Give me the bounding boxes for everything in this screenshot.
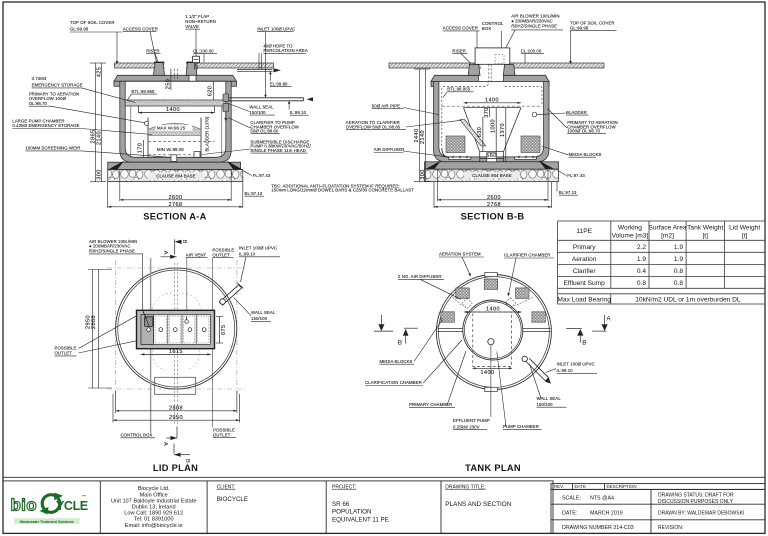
svg-text:ACCESS COVER: ACCESS COVER [123, 26, 158, 31]
svg-text:Dublin 13, Ireland: Dublin 13, Ireland [132, 505, 176, 511]
svg-text:DATE: DATE [575, 484, 586, 489]
svg-text:IL:99.10: IL:99.10 [239, 252, 256, 257]
svg-text:2.2: 2.2 [637, 244, 646, 251]
svg-text:OUTLET: OUTLET [55, 351, 73, 356]
svg-text:0.8: 0.8 [674, 280, 683, 287]
svg-text:[t]: [t] [702, 232, 708, 239]
svg-text:WALL SEAL: WALL SEAL [251, 310, 276, 315]
svg-text:50Ø AIR PIPE: 50Ø AIR PIPE [372, 103, 400, 108]
svg-text:RISER: RISER [452, 48, 466, 53]
svg-text:OL:98.70: OL:98.70 [29, 101, 48, 106]
svg-text:1.9: 1.9 [637, 256, 646, 263]
svg-text:DESCRIPTION: DESCRIPTION [607, 484, 637, 489]
svg-text:DRAWN BY: WALDEMAR DEBOWSKI: DRAWN BY: WALDEMAR DEBOWSKI [658, 510, 744, 516]
svg-text:BTL:98.955: BTL:98.955 [447, 87, 471, 92]
svg-text:BLADDER (1370): BLADDER (1370) [204, 116, 209, 152]
svg-text:1.9: 1.9 [674, 244, 683, 251]
svg-text:560: 560 [486, 153, 497, 159]
svg-text:IL:99.10: IL:99.10 [557, 368, 574, 373]
svg-text:SCALE:: SCALE: [562, 495, 581, 501]
svg-text:300: 300 [420, 169, 426, 180]
svg-text:CL:100.00: CL:100.00 [193, 48, 214, 53]
svg-text:B: B [582, 340, 586, 347]
svg-text:NTS @A4: NTS @A4 [590, 495, 614, 501]
svg-text:PERCOLATION AREA: PERCOLATION AREA [263, 48, 307, 53]
svg-text:0.4: 0.4 [637, 268, 646, 275]
svg-text:Lid Weight: Lid Weight [729, 225, 760, 232]
svg-text:INLET 100Ø UPVC: INLET 100Ø UPVC [239, 245, 277, 250]
svg-text:BLADDER: BLADDER [566, 110, 587, 115]
svg-text:2600: 2600 [168, 195, 182, 201]
svg-text:SECTION A-A: SECTION A-A [143, 212, 206, 222]
svg-text:0.25kW 230V: 0.25kW 230V [453, 424, 480, 429]
svg-text:PLANS AND SECTION: PLANS AND SECTION [445, 501, 511, 508]
svg-text:2768: 2768 [487, 202, 501, 208]
svg-text:IL:99.10: IL:99.10 [290, 110, 307, 115]
svg-text:TANK PLAN: TANK PLAN [465, 463, 521, 473]
svg-text:150/100: 150/100 [249, 110, 266, 115]
svg-text:1400: 1400 [485, 97, 499, 103]
svg-text:OUTLET: OUTLET [213, 432, 231, 437]
svg-text:BIOCYCLE: BIOCYCLE [217, 496, 248, 503]
svg-text:1000Ø OL:98.70: 1000Ø OL:98.70 [567, 128, 600, 133]
svg-text:1400: 1400 [486, 307, 500, 313]
svg-text:BL:97.13: BL:97.13 [245, 191, 263, 196]
svg-text:SECTION B-B: SECTION B-B [461, 212, 525, 222]
svg-text:/50HZ/SINGLE PHASE: /50HZ/SINGLE PHASE [511, 23, 557, 28]
svg-text:CLARIFIER CHAMBER: CLARIFIER CHAMBER [504, 253, 550, 258]
svg-text:EQUIVALENT 11 PE: EQUIVALENT 11 PE [332, 516, 389, 523]
svg-text:Email: info@biocycle.ie: Email: info@biocycle.ie [125, 523, 183, 529]
svg-text:1.9: 1.9 [674, 256, 683, 263]
svg-text:300: 300 [96, 169, 102, 180]
svg-text:150mm LONG/12mmØ DOWEL BARS &: 150mm LONG/12mmØ DOWEL BARS & C25/30 CON… [271, 188, 414, 193]
svg-text:A: A [162, 442, 168, 446]
svg-text:CONTROL BOX: CONTROL BOX [121, 433, 153, 438]
svg-text:Effluent Sump: Effluent Sump [564, 280, 606, 287]
svg-text:TOP OF SOIL COVER: TOP OF SOIL COVER [70, 20, 115, 25]
svg-text:DISCUSSION PURPOSES ONLY: DISCUSSION PURPOSES ONLY [658, 499, 734, 505]
svg-text:RISER: RISER [146, 48, 160, 53]
svg-text:A: A [606, 315, 611, 322]
svg-text:ACCESS COVER: ACCESS COVER [443, 26, 478, 31]
svg-text:[t]: [t] [742, 232, 748, 239]
svg-text:AERATION SYSTEM: AERATION SYSTEM [439, 252, 481, 257]
svg-text:PROJECT:: PROJECT: [332, 484, 356, 490]
svg-text:2 NO. AIR DIFFUSER: 2 NO. AIR DIFFUSER [398, 274, 441, 279]
svg-text:2140: 2140 [96, 131, 102, 145]
svg-text:MIN Wₗ:98.08: MIN Wₗ:98.08 [157, 147, 184, 152]
svg-text:0.8: 0.8 [637, 280, 646, 287]
svg-text:Working: Working [618, 225, 642, 232]
svg-text:1370: 1370 [500, 123, 506, 137]
svg-text:MEDIA BLOCKS: MEDIA BLOCKS [380, 359, 413, 364]
svg-text:100MM SCREENING WEIR: 100MM SCREENING WEIR [25, 146, 80, 151]
svg-text:1400: 1400 [480, 370, 494, 376]
svg-text:Biocycle Ltd.: Biocycle Ltd. [138, 486, 170, 492]
svg-text:Surface Area: Surface Area [648, 225, 686, 232]
svg-text:CL:100.00: CL:100.00 [521, 48, 542, 53]
svg-text:MAX Wₗ:98.25: MAX Wₗ:98.25 [157, 126, 186, 131]
svg-text:Aeration: Aeration [572, 256, 597, 263]
svg-text:AIR DIFFUSER: AIR DIFFUSER [374, 147, 405, 152]
svg-text:A: A [162, 251, 168, 255]
svg-text:GL:99.98: GL:99.98 [70, 27, 89, 32]
svg-text:150/100: 150/100 [251, 316, 268, 321]
svg-text:AIR VENT: AIR VENT [186, 252, 207, 257]
svg-text:0.8: 0.8 [674, 268, 683, 275]
svg-text:630: 630 [477, 127, 483, 138]
svg-text:OVERFLOW 50Ø OL:98.65: OVERFLOW 50Ø OL:98.65 [346, 124, 401, 129]
svg-text:1615: 1615 [169, 349, 183, 355]
svg-text:POPULATION: POPULATION [332, 509, 371, 516]
svg-text:CLAUSE 804 BASE: CLAUSE 804 BASE [156, 173, 195, 178]
svg-text:11PE: 11PE [576, 228, 592, 235]
svg-text:150/100: 150/100 [537, 402, 554, 407]
svg-text:2768: 2768 [168, 202, 182, 208]
svg-text:BOX: BOX [482, 26, 491, 31]
svg-text:bio: bio [11, 496, 37, 515]
svg-text:FL:97.43: FL:97.43 [567, 173, 585, 178]
svg-text:CLARIFICATION CHAMBER: CLARIFICATION CHAMBER [365, 380, 422, 385]
svg-text:0.74M3: 0.74M3 [32, 76, 47, 81]
svg-text:™: ™ [82, 494, 87, 499]
svg-text:DRAWING NUMBER 314-C03: DRAWING NUMBER 314-C03 [562, 525, 634, 531]
svg-text:Unit 107 Baldoyle Industrial E: Unit 107 Baldoyle Industrial Estate [111, 498, 197, 504]
svg-text:Tank Weight: Tank Weight [687, 225, 723, 232]
svg-text:CLAUSE 804 BASE: CLAUSE 804 BASE [472, 173, 511, 178]
svg-text:Primary: Primary [573, 244, 596, 251]
svg-text:2888: 2888 [91, 315, 97, 329]
svg-text:MARCH 2019: MARCH 2019 [590, 510, 623, 516]
svg-text:620: 620 [208, 86, 214, 97]
svg-text:OUTLET: OUTLET [212, 252, 230, 257]
svg-text:2600: 2600 [487, 195, 501, 201]
svg-text:2140: 2140 [420, 130, 426, 144]
svg-text:DATE:: DATE: [562, 510, 577, 516]
svg-text:675: 675 [221, 324, 227, 335]
svg-text:LID PLAN: LID PLAN [153, 463, 198, 473]
svg-text:YCLE: YCLE [56, 499, 88, 513]
svg-text:INLET 100Ø UPVC: INLET 100Ø UPVC [557, 362, 595, 367]
svg-text:Main Office: Main Office [140, 492, 168, 498]
svg-text:SINGLE PHASE 11m HEAD: SINGLE PHASE 11m HEAD [250, 148, 306, 153]
svg-text:VALVE: VALVE [185, 24, 199, 29]
svg-text:BL:97.13: BL:97.13 [559, 190, 577, 195]
svg-text:50Ø OL:98.60: 50Ø OL:98.60 [250, 128, 278, 133]
svg-text:Wastewater Treatment Solutions: Wastewater Treatment Solutions [20, 520, 74, 524]
svg-text:370: 370 [484, 107, 490, 118]
svg-text:0.43M3 EMERGENCY STORAGE: 0.43M3 EMERGENCY STORAGE [12, 123, 79, 128]
svg-text:425: 425 [96, 67, 102, 78]
svg-text:BTL:98.955: BTL:98.955 [132, 89, 156, 94]
svg-text:1000: 1000 [491, 119, 497, 133]
svg-text:DRAWING TITLE:: DRAWING TITLE: [445, 484, 485, 490]
svg-text:REVISION:: REVISION: [658, 525, 683, 531]
svg-text:EL:99.80: EL:99.80 [270, 81, 288, 86]
svg-text:B: B [398, 340, 402, 347]
svg-text:Volume [m3]: Volume [m3] [612, 232, 649, 239]
svg-text:250: 250 [165, 79, 171, 90]
svg-text:Low Call: 1890 929 612: Low Call: 1890 929 612 [124, 511, 183, 517]
svg-text:PRIMARY CHAMBER: PRIMARY CHAMBER [409, 402, 452, 407]
svg-text:B: B [184, 459, 190, 463]
svg-text:Max Load Bearing: Max Load Bearing [557, 297, 611, 304]
svg-text:EFFLUENT PUMP: EFFLUENT PUMP [453, 418, 490, 423]
svg-text:INLET 100Ø UPVC: INLET 100Ø UPVC [257, 26, 295, 31]
svg-text:2888: 2888 [169, 405, 183, 411]
svg-text:FL:97.43: FL:97.43 [253, 173, 271, 178]
svg-text:170: 170 [138, 143, 144, 154]
svg-text:PUMP CHAMBER: PUMP CHAMBER [503, 424, 539, 429]
svg-text:Clarifier: Clarifier [573, 268, 597, 275]
svg-text:EMERGENCY STORAGE: EMERGENCY STORAGE [32, 83, 83, 88]
svg-text:SR 66: SR 66 [332, 501, 350, 508]
svg-text:CLIENT:: CLIENT: [217, 484, 236, 490]
svg-text:10kN/m2 UDL or 1m overburden D: 10kN/m2 UDL or 1m overburden DL [635, 297, 741, 304]
svg-text:/50HZ/SINGLE PHASE: /50HZ/SINGLE PHASE [89, 249, 135, 254]
svg-text:1400: 1400 [166, 107, 180, 113]
svg-text:Tel: 01 8391000: Tel: 01 8391000 [134, 517, 174, 523]
svg-text:B: B [181, 240, 187, 244]
svg-text:GL:99.98: GL:99.98 [570, 25, 589, 30]
svg-text:2950: 2950 [169, 415, 183, 421]
svg-text:MEDIA BLOCKS: MEDIA BLOCKS [569, 152, 602, 157]
svg-text:[m2]: [m2] [661, 232, 674, 239]
svg-text:REV.: REV. [554, 484, 564, 489]
svg-text:DRAWING STATUS: DRAFT FOR: DRAWING STATUS: DRAFT FOR [658, 493, 734, 499]
